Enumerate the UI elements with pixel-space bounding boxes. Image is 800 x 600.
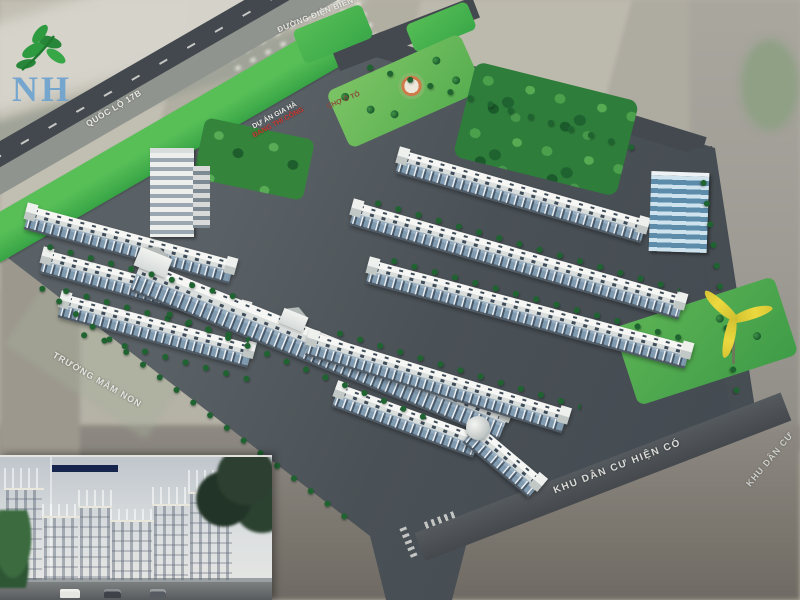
inset-tree-left: [0, 510, 36, 588]
masterplan-render: ĐƯỜNG ĐIỆN BIÊN PHỦ QUỐC LỘ 17B CHỢ Ô TÔ…: [0, 0, 800, 600]
developer-logo: NH: [0, 6, 120, 116]
inset-building: [112, 520, 152, 580]
tree: [431, 55, 442, 66]
inset-streetview-photo: [0, 455, 272, 600]
logo-text: NH: [12, 68, 72, 110]
tree: [365, 104, 376, 115]
inset-road: [0, 582, 272, 600]
inset-roof: [78, 490, 112, 508]
inset-roof: [110, 509, 154, 522]
windmill-blade: [701, 288, 741, 326]
inset-banner: [52, 465, 118, 472]
inset-tree-right: [184, 455, 272, 545]
tower-annex: [193, 166, 210, 228]
windmill-sculpture: [694, 278, 774, 368]
background-green-patch: [735, 30, 800, 140]
inset-building: [44, 516, 78, 580]
inset-car: [150, 589, 166, 598]
inset-roof: [4, 468, 44, 490]
inset-roof: [42, 504, 80, 518]
corner-rotunda: [466, 416, 490, 440]
tree: [389, 109, 400, 120]
inset-building: [154, 504, 188, 580]
inset-building: [80, 506, 110, 580]
inset-van: [60, 589, 80, 598]
tower-building: [150, 148, 194, 237]
tree: [451, 75, 462, 86]
leaf-icon: [4, 12, 90, 76]
inset-car: [104, 589, 121, 598]
